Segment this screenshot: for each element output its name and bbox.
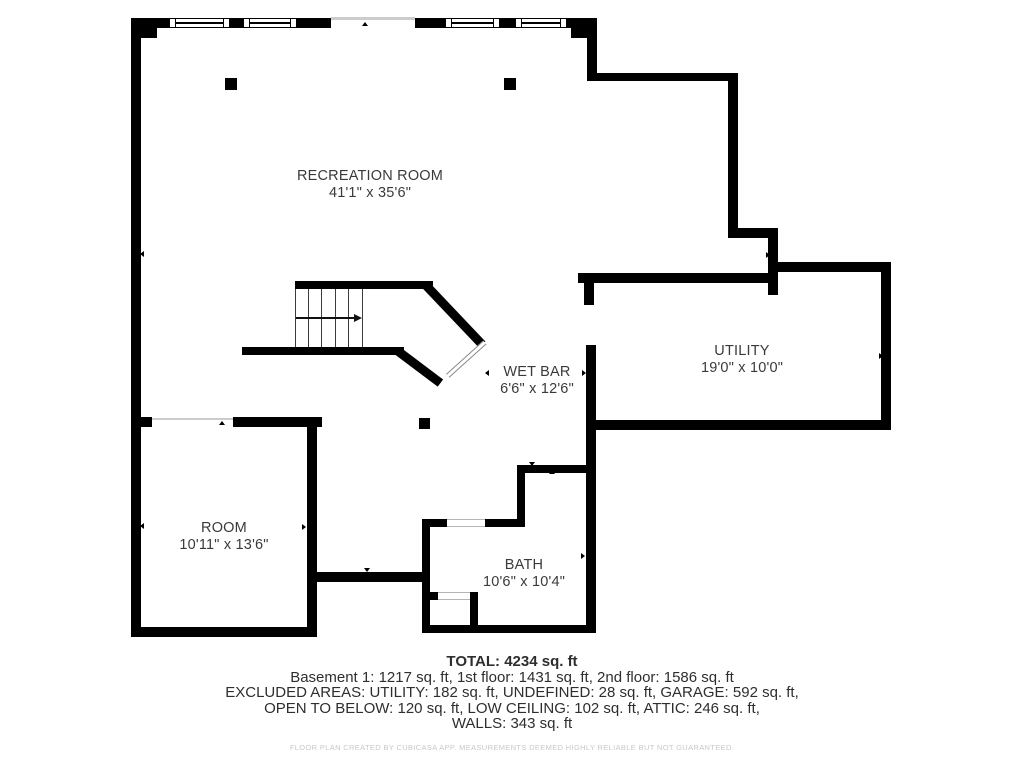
direction-marker xyxy=(221,628,227,632)
wall xyxy=(586,420,891,430)
room-dims: 10'6" x 10'4" xyxy=(434,574,614,591)
window-icon xyxy=(445,18,500,28)
stair-wall-diagonal xyxy=(422,282,485,348)
room-dims: 19'0" x 10'0" xyxy=(642,360,842,377)
wall xyxy=(578,273,770,283)
window-icon xyxy=(243,18,297,28)
stair-direction-arrow xyxy=(296,317,356,319)
room-dims: 6'6" x 12'6" xyxy=(462,381,612,398)
room-name: UTILITY xyxy=(642,343,842,360)
wall xyxy=(230,18,243,28)
room-dims: 41'1" x 35'6" xyxy=(250,185,490,202)
room-label-bath: BATH 10'6" x 10'4" xyxy=(434,557,614,591)
direction-marker xyxy=(529,462,535,466)
summary-excluded-line2: OPEN TO BELOW: 120 sq. ft, LOW CEILING: … xyxy=(0,701,1024,717)
wall xyxy=(881,262,891,430)
wall xyxy=(422,625,596,633)
direction-marker xyxy=(589,354,593,360)
stair-wall-diagonal xyxy=(395,347,444,387)
summary-total: TOTAL: 4234 sq. ft xyxy=(0,654,1024,670)
wall xyxy=(517,465,525,527)
direction-marker xyxy=(140,251,144,257)
window-icon xyxy=(515,18,567,28)
room-name: BATH xyxy=(434,557,614,574)
room-label-wet-bar: WET BAR 6'6" x 12'6" xyxy=(462,364,612,398)
room-name: WET BAR xyxy=(462,364,612,381)
wall xyxy=(131,417,152,427)
direction-marker xyxy=(364,568,370,572)
wall-opening xyxy=(152,418,233,420)
direction-marker xyxy=(549,626,555,630)
column xyxy=(504,78,516,90)
room-label-recreation-room: RECREATION ROOM 41'1" x 35'6" xyxy=(250,168,490,202)
direction-marker xyxy=(825,421,831,425)
direction-marker xyxy=(424,553,428,559)
stair-wall xyxy=(295,281,433,289)
summary-walls: WALLS: 343 sq. ft xyxy=(0,716,1024,732)
room-label-room: ROOM 10'11" x 13'6" xyxy=(124,520,324,554)
wall xyxy=(415,18,445,28)
wall-opening xyxy=(331,17,415,20)
wall xyxy=(517,465,596,473)
column xyxy=(225,78,237,90)
door-opening xyxy=(447,519,485,527)
room-dims: 10'11" x 13'6" xyxy=(124,537,324,554)
direction-marker xyxy=(826,264,832,268)
wall xyxy=(470,592,478,633)
direction-marker xyxy=(766,252,770,258)
wall xyxy=(587,18,597,81)
stair-tread xyxy=(362,289,363,347)
door-opening xyxy=(438,592,470,600)
direction-marker xyxy=(219,421,225,425)
wall xyxy=(312,572,427,582)
wall xyxy=(500,18,515,28)
wall xyxy=(728,73,738,238)
direction-marker xyxy=(879,353,883,359)
wall xyxy=(584,283,594,305)
wall xyxy=(485,519,525,527)
wall xyxy=(775,262,891,272)
window-icon xyxy=(169,18,230,28)
direction-marker xyxy=(362,22,368,26)
wall xyxy=(587,73,738,81)
stair-wall xyxy=(242,347,404,355)
stair-direction-arrow-head xyxy=(354,314,362,322)
room-name: ROOM xyxy=(124,520,324,537)
column xyxy=(419,418,430,429)
summary-floors: Basement 1: 1217 sq. ft, 1st floor: 1431… xyxy=(0,670,1024,686)
summary-excluded-line1: EXCLUDED AREAS: UTILITY: 182 sq. ft, UND… xyxy=(0,685,1024,701)
room-label-utility: UTILITY 19'0" x 10'0" xyxy=(642,343,842,377)
room-name: RECREATION ROOM xyxy=(250,168,490,185)
area-summary: TOTAL: 4234 sq. ft Basement 1: 1217 sq. … xyxy=(0,654,1024,732)
disclaimer-text: FLOOR PLAN CREATED BY CUBICASA APP. MEAS… xyxy=(0,743,1024,752)
wall xyxy=(297,18,331,28)
direction-marker xyxy=(549,470,555,474)
wall xyxy=(422,592,438,600)
wall xyxy=(422,519,430,633)
